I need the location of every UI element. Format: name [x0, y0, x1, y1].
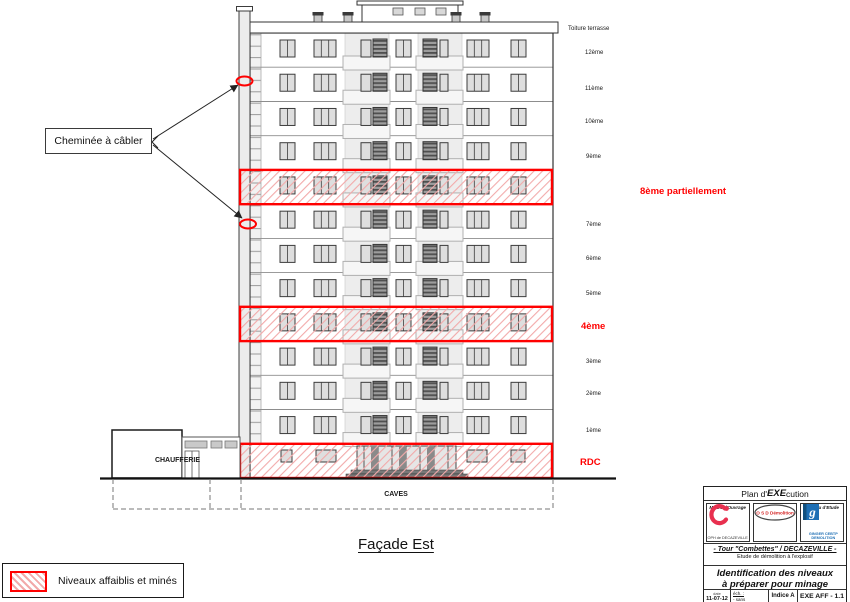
- plan-bold: EXE: [767, 488, 786, 499]
- legend-hatch-swatch: [10, 571, 47, 592]
- plan-suffix: cution: [786, 489, 809, 499]
- document-title-line1: Identification des niveaux: [704, 568, 846, 579]
- plan-execution-header: Plan d'EXEcution: [704, 487, 846, 501]
- reference-value: EXE AFF - 1.1: [800, 593, 844, 600]
- oph-logo-icon: [707, 504, 737, 526]
- entreprise-cell: Entreprise O S D Démolition: [753, 503, 797, 542]
- osd-org-text: O S D Démolition: [756, 510, 794, 515]
- indice-value: Indice A: [771, 594, 794, 600]
- ginger-org-line2: DEMOLITION: [811, 536, 835, 540]
- level-label-6eme: 6ème: [586, 256, 601, 262]
- roof-structures: [248, 1, 558, 33]
- level-label-8eme-partiellement: 8ème partiellement: [640, 186, 726, 197]
- chimney-cable-note-text: Cheminée à câbler: [54, 135, 142, 147]
- legend-box: Niveaux affaiblis et minés: [2, 563, 184, 598]
- level-label-12eme: 12ème: [585, 50, 603, 56]
- level-label-11eme: 11ème: [585, 86, 603, 92]
- ginger-org-text: GINGER CEBTP DEMOLITION: [802, 532, 844, 540]
- project-name: - Tour "Combettes" / DECAZEVILLE -: [704, 546, 846, 553]
- scale-cell: éch. : - sans: [731, 590, 769, 602]
- title-block-meta-row: date 11-07-12 éch. : - sans Indice A EXE…: [704, 589, 846, 602]
- level-label-1eme: 1ème: [586, 428, 601, 434]
- level-label-3eme: 3ème: [586, 359, 601, 365]
- ginger-logo-icon: g: [801, 504, 821, 521]
- svg-text:g: g: [808, 504, 816, 519]
- level-label-2eme: 2ème: [586, 391, 601, 397]
- indice-cell: Indice A: [769, 590, 798, 602]
- title-block-logos: Maître d'Ouvrage OPH de DECAZEVILLE Entr…: [704, 501, 846, 543]
- chaufferie-building: [112, 430, 240, 478]
- level-label-rdc: RDC: [580, 457, 601, 468]
- caves-label: CAVES: [376, 491, 416, 498]
- plan-prefix: Plan d': [741, 489, 767, 499]
- legend-label: Niveaux affaiblis et minés: [58, 564, 177, 597]
- scale-value: - sans: [733, 597, 745, 602]
- date-cell: date 11-07-12: [704, 590, 731, 602]
- document-title-row: Identification des niveaux à préparer po…: [704, 565, 846, 589]
- level-label-10eme: 10ème: [585, 119, 603, 125]
- roof-level-label: Toiture terrasse: [568, 26, 609, 32]
- project-name-row: - Tour "Combettes" / DECAZEVILLE - Etude…: [704, 543, 846, 565]
- leader-arrow-top: [153, 85, 238, 139]
- document-title-line2: à préparer pour minage: [704, 579, 846, 590]
- date-value: 11-07-12: [706, 597, 728, 602]
- figure-title: Façade Est: [358, 536, 434, 553]
- caves-outline: [113, 479, 553, 509]
- ground-and-caves: [100, 479, 616, 510]
- oph-org-text: OPH de DECAZEVILLE: [708, 536, 748, 540]
- highlight-rdc: [240, 444, 552, 478]
- osd-demolition-logo-icon: O S D Démolition: [754, 504, 796, 521]
- title-block: Plan d'EXEcution Maître d'Ouvrage OPH de…: [703, 486, 847, 602]
- level-label-5eme: 5ème: [586, 291, 601, 297]
- plan-sheet: Toiture terrasse 12ème 11ème 10ème 9ème …: [0, 0, 850, 602]
- highlight-4eme: [240, 307, 552, 341]
- maitre-douvrage-cell: Maître d'Ouvrage OPH de DECAZEVILLE: [706, 503, 750, 542]
- bureau-detude-cell: Bureau d'Etude g GINGER CEBTP DEMOLITION: [800, 503, 844, 542]
- highlight-8eme: [240, 170, 552, 204]
- leader-arrow-bottom: [153, 145, 242, 218]
- project-subtitle: Etude de démolition à l'explosif: [704, 554, 846, 560]
- level-label-7eme: 7ème: [586, 222, 601, 228]
- level-label-9eme: 9ème: [586, 154, 601, 160]
- chimney-cable-note: Cheminée à câbler: [45, 128, 152, 154]
- reference-cell: EXE AFF - 1.1: [798, 590, 846, 602]
- level-label-4eme: 4ème: [581, 321, 605, 332]
- chaufferie-label: CHAUFFERIE: [140, 457, 215, 464]
- building-facade: [250, 33, 553, 478]
